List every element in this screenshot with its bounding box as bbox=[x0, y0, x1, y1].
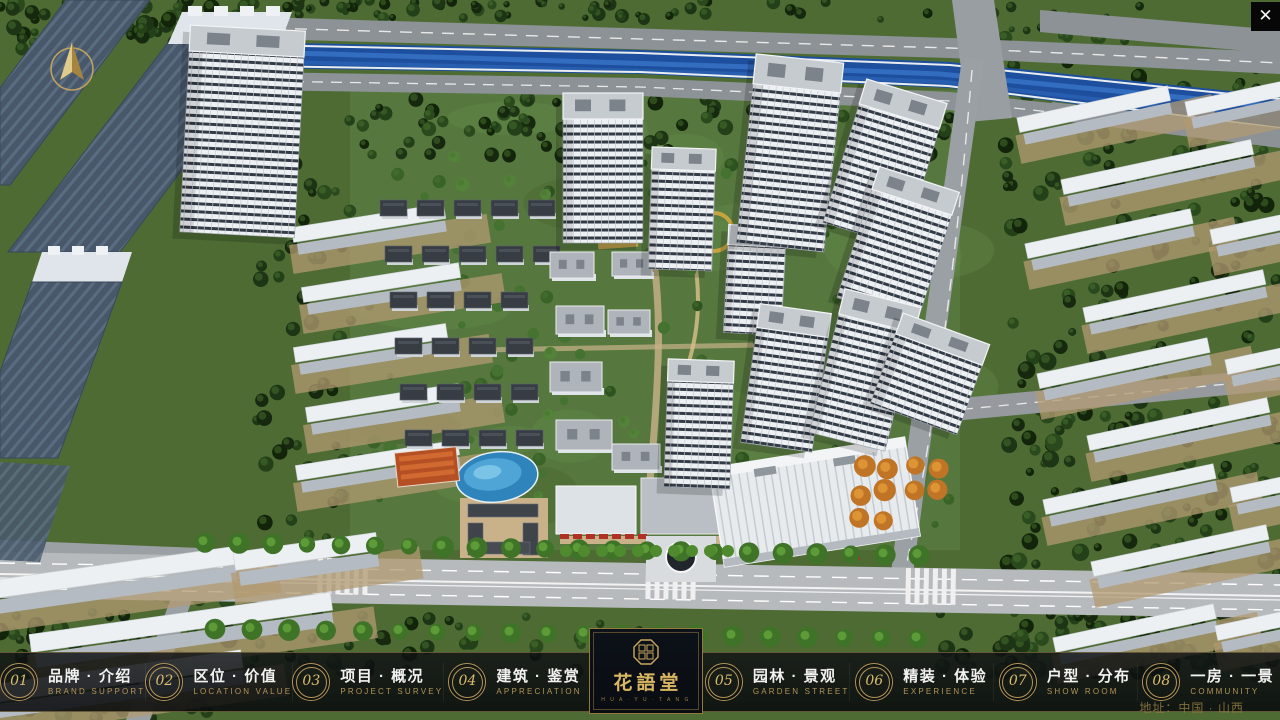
compass-north-icon bbox=[42, 36, 102, 100]
brand-logo-plaque[interactable]: 花語堂 H U A · Y U · T A N G bbox=[589, 628, 703, 714]
logo-slot: 花語堂 H U A · Y U · T A N G bbox=[587, 653, 705, 711]
nav-item-floorplans[interactable]: 07 户型 · 分布 SHOW ROOM bbox=[993, 653, 1137, 711]
nav-badge: 08 bbox=[1142, 663, 1180, 701]
nav-badge: 05 bbox=[705, 663, 743, 701]
orange-roof-building bbox=[394, 447, 459, 487]
brand-seal-icon bbox=[633, 639, 659, 665]
nav-badge: 07 bbox=[999, 663, 1037, 701]
project-address: 地址：中国 · 山西 bbox=[1139, 699, 1244, 716]
close-button[interactable]: ✕ bbox=[1251, 2, 1280, 31]
aerial-masterplan-render bbox=[0, 0, 1280, 720]
brand-name-latin: H U A · Y U · T A N G bbox=[601, 697, 690, 703]
nav-item-interior-experience[interactable]: 06 精装 · 体验 EXPERIENCE bbox=[849, 653, 993, 711]
nav-item-location-value[interactable]: 02 区位 · 价值 LOCATION VALUE bbox=[145, 653, 292, 711]
nav-badge: 03 bbox=[292, 663, 330, 701]
nav-item-architecture[interactable]: 04 建筑 · 鉴赏 APPRECIATION bbox=[443, 653, 587, 711]
nav-item-garden-landscape[interactable]: 05 园林 · 景观 GARDEN STREET bbox=[705, 653, 850, 711]
nav-badge: 01 bbox=[0, 663, 38, 701]
nav-badge: 04 bbox=[448, 663, 486, 701]
nav-badge: 02 bbox=[145, 663, 183, 701]
brand-name: 花語堂 bbox=[609, 668, 682, 695]
nav-item-project-survey[interactable]: 03 项目 · 概况 PROJECT SURVEY bbox=[292, 653, 443, 711]
bottom-navigation-bar: 01 品牌 · 介绍 BRAND SUPPORT 02 区位 · 价值 LOCA… bbox=[0, 652, 1280, 712]
sales-presentation-screen: ✕ 01 品牌 · 介绍 BRAND SUPPORT 02 区位 · 价值 LO… bbox=[0, 0, 1280, 720]
nav-item-brand-intro[interactable]: 01 品牌 · 介绍 BRAND SUPPORT bbox=[0, 653, 145, 711]
nav-badge: 06 bbox=[855, 663, 893, 701]
